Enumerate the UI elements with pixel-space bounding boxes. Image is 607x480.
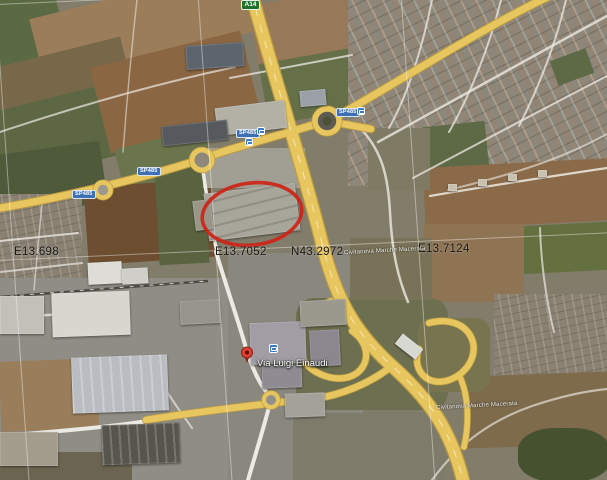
building: [448, 184, 457, 191]
transit-stop-icon[interactable]: [245, 138, 253, 146]
building: [185, 42, 245, 70]
graticule-label: N43.2972: [291, 246, 343, 258]
building: [538, 170, 547, 177]
building: [179, 299, 220, 325]
sp485-road-shield: SP485: [336, 108, 360, 117]
building: [71, 354, 169, 413]
graticule-label: E13.7052: [215, 246, 267, 258]
sp485-road-shield: SP485: [137, 167, 161, 176]
building: [0, 432, 58, 466]
building: [51, 291, 130, 338]
graticule-label: E13.698: [14, 246, 59, 258]
building: [101, 423, 180, 466]
building: [285, 392, 326, 417]
building: [478, 179, 487, 186]
transit-stop-icon[interactable]: [357, 107, 365, 115]
poi-icon[interactable]: [269, 344, 278, 353]
building: [192, 199, 214, 231]
satellite-map[interactable]: A14 SP485 SP485 SP485 SP485 Via Luigi Ei…: [0, 0, 607, 480]
building: [87, 261, 122, 285]
building: [122, 267, 149, 284]
building: [299, 299, 346, 327]
transit-stop-icon[interactable]: [257, 127, 265, 135]
placemark-label: Via Luigi Einaudi: [257, 358, 328, 369]
placemark-pin[interactable]: [240, 346, 254, 364]
building: [508, 174, 517, 181]
a14-road-shield: A14: [241, 0, 260, 10]
sp485-road-shield: SP485: [236, 129, 260, 138]
building: [299, 89, 326, 107]
sp485-road-shield: SP485: [72, 190, 96, 199]
building: [0, 296, 44, 334]
